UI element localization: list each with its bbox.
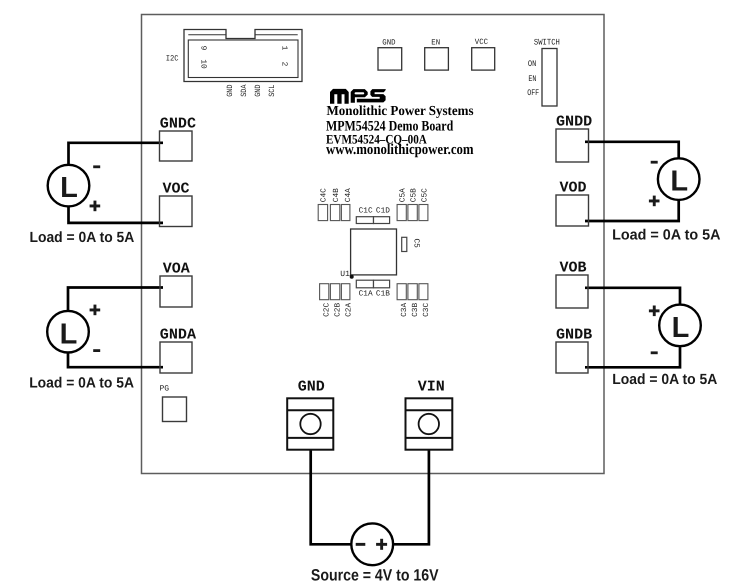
svg-text:2: 2 — [280, 62, 289, 67]
svg-text:C3C: C3C — [422, 303, 431, 317]
svg-text:Load = 0A to 5A: Load = 0A to 5A — [612, 372, 717, 388]
svg-text:C4C: C4C — [320, 188, 329, 202]
svg-text:ON: ON — [528, 59, 536, 69]
svg-text:GNDA: GNDA — [160, 326, 196, 343]
svg-text:GND: GND — [226, 84, 235, 96]
svg-text:SWITCH: SWITCH — [534, 37, 560, 47]
svg-text:C1A: C1A — [359, 289, 373, 298]
svg-text:I2C: I2C — [166, 54, 179, 63]
svg-text:EN: EN — [431, 39, 440, 48]
svg-text:L: L — [60, 318, 78, 350]
svg-text:VOA: VOA — [163, 260, 190, 277]
svg-text:C3A: C3A — [400, 303, 409, 317]
svg-text:C5C: C5C — [421, 188, 430, 202]
svg-text:C4A: C4A — [344, 188, 353, 202]
svg-text:C1B: C1B — [376, 289, 390, 298]
svg-text:www.monolithicpower.com: www.monolithicpower.com — [326, 142, 474, 158]
svg-text:Load = 0A to 5A: Load = 0A to 5A — [30, 230, 135, 246]
svg-text:C5B: C5B — [410, 188, 419, 202]
svg-text:L: L — [670, 166, 688, 198]
svg-text:VCC: VCC — [475, 38, 488, 47]
svg-text:C5: C5 — [412, 239, 421, 249]
svg-text:1: 1 — [280, 46, 289, 51]
svg-text:C3B: C3B — [411, 303, 420, 317]
svg-text:C1D: C1D — [376, 207, 390, 216]
svg-text:10: 10 — [199, 59, 208, 69]
svg-text:SDA: SDA — [240, 84, 249, 96]
svg-text:GNDD: GNDD — [556, 113, 592, 130]
svg-text:PG: PG — [160, 385, 170, 394]
svg-text:VOC: VOC — [163, 180, 190, 197]
svg-text:L: L — [60, 172, 78, 204]
svg-text:OFF: OFF — [527, 88, 539, 98]
svg-text:GNDC: GNDC — [160, 115, 196, 132]
svg-text:SCL: SCL — [268, 84, 277, 96]
svg-text:GNDB: GNDB — [556, 326, 592, 343]
svg-text:L: L — [672, 312, 690, 344]
svg-text:EN: EN — [528, 74, 536, 84]
svg-text:C2A: C2A — [344, 303, 353, 317]
svg-text:C4B: C4B — [332, 188, 341, 202]
svg-text:VOD: VOD — [560, 179, 587, 196]
svg-text:VIN: VIN — [418, 378, 445, 395]
svg-text:C2C: C2C — [322, 303, 331, 317]
svg-text:GND: GND — [254, 84, 263, 96]
svg-text:Load = 0A to 5A: Load = 0A to 5A — [612, 227, 721, 243]
svg-text:C5A: C5A — [399, 188, 408, 202]
svg-text:GND: GND — [382, 39, 395, 48]
svg-text:U1: U1 — [340, 270, 350, 279]
svg-text:Monolithic Power Systems: Monolithic Power Systems — [327, 103, 475, 118]
svg-text:GND: GND — [298, 378, 325, 395]
svg-text:C2B: C2B — [333, 303, 342, 317]
svg-text:Source = 4V to 16V: Source = 4V to 16V — [311, 566, 439, 584]
svg-text:Load = 0A to 5A: Load = 0A to 5A — [29, 375, 134, 391]
svg-text:VOB: VOB — [560, 259, 587, 276]
svg-text:9: 9 — [199, 46, 208, 51]
svg-text:C1C: C1C — [359, 207, 373, 216]
